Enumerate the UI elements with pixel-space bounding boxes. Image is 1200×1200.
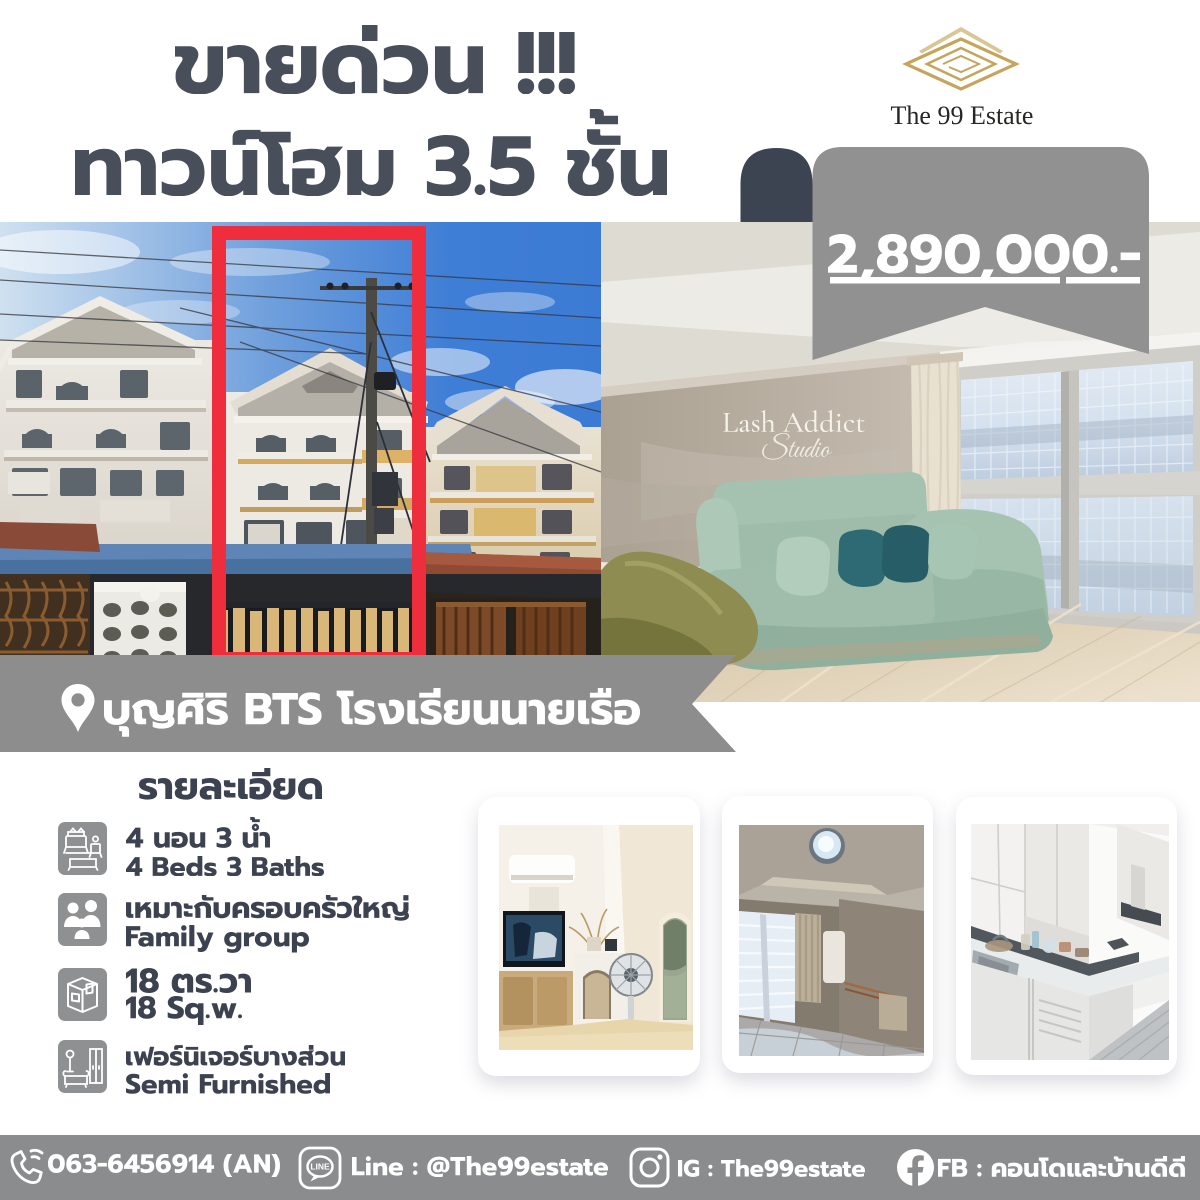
svg-text:The 99 Estate: The 99 Estate	[891, 101, 1034, 130]
svg-text:LINE: LINE	[310, 1162, 330, 1172]
